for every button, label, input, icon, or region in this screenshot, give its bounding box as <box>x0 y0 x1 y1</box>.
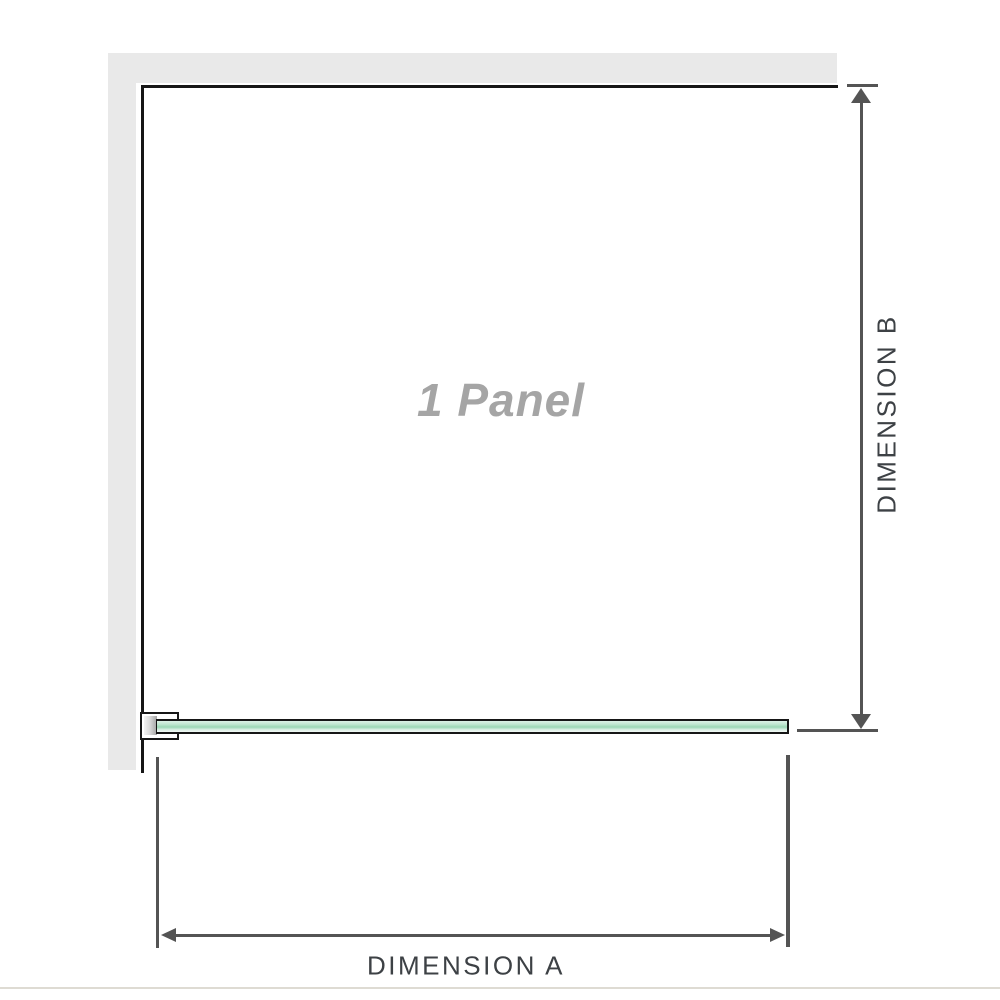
panel-frame-top-edge <box>141 85 838 88</box>
panel-label: 1 Panel <box>417 373 585 427</box>
dimension-b-arrowhead-down-icon <box>851 714 871 729</box>
wall-left <box>108 53 136 770</box>
glass-panel <box>156 719 789 734</box>
wall-top <box>108 53 837 83</box>
panel-frame-left-edge <box>141 85 144 773</box>
dimension-a-right-extension-line <box>786 755 790 947</box>
dimension-a-arrowhead-left-icon <box>161 928 176 942</box>
dimension-a-arrow-line <box>170 934 776 938</box>
shower-panel-dimension-diagram: 1 Panel DIMENSION B DIMENSION A <box>0 0 1000 1000</box>
bottom-divider-line <box>0 987 1000 989</box>
dimension-b-top-tick <box>847 84 878 87</box>
dimension-a-arrowhead-right-icon <box>770 928 785 942</box>
dimension-b-bottom-tick <box>797 729 878 732</box>
dimension-a-label: DIMENSION A <box>367 951 565 982</box>
dimension-b-arrowhead-up-icon <box>851 88 871 103</box>
dimension-b-label: DIMENSION B <box>872 314 903 513</box>
dimension-b-arrow-line <box>860 96 864 722</box>
dimension-a-left-extension-line <box>156 757 160 948</box>
